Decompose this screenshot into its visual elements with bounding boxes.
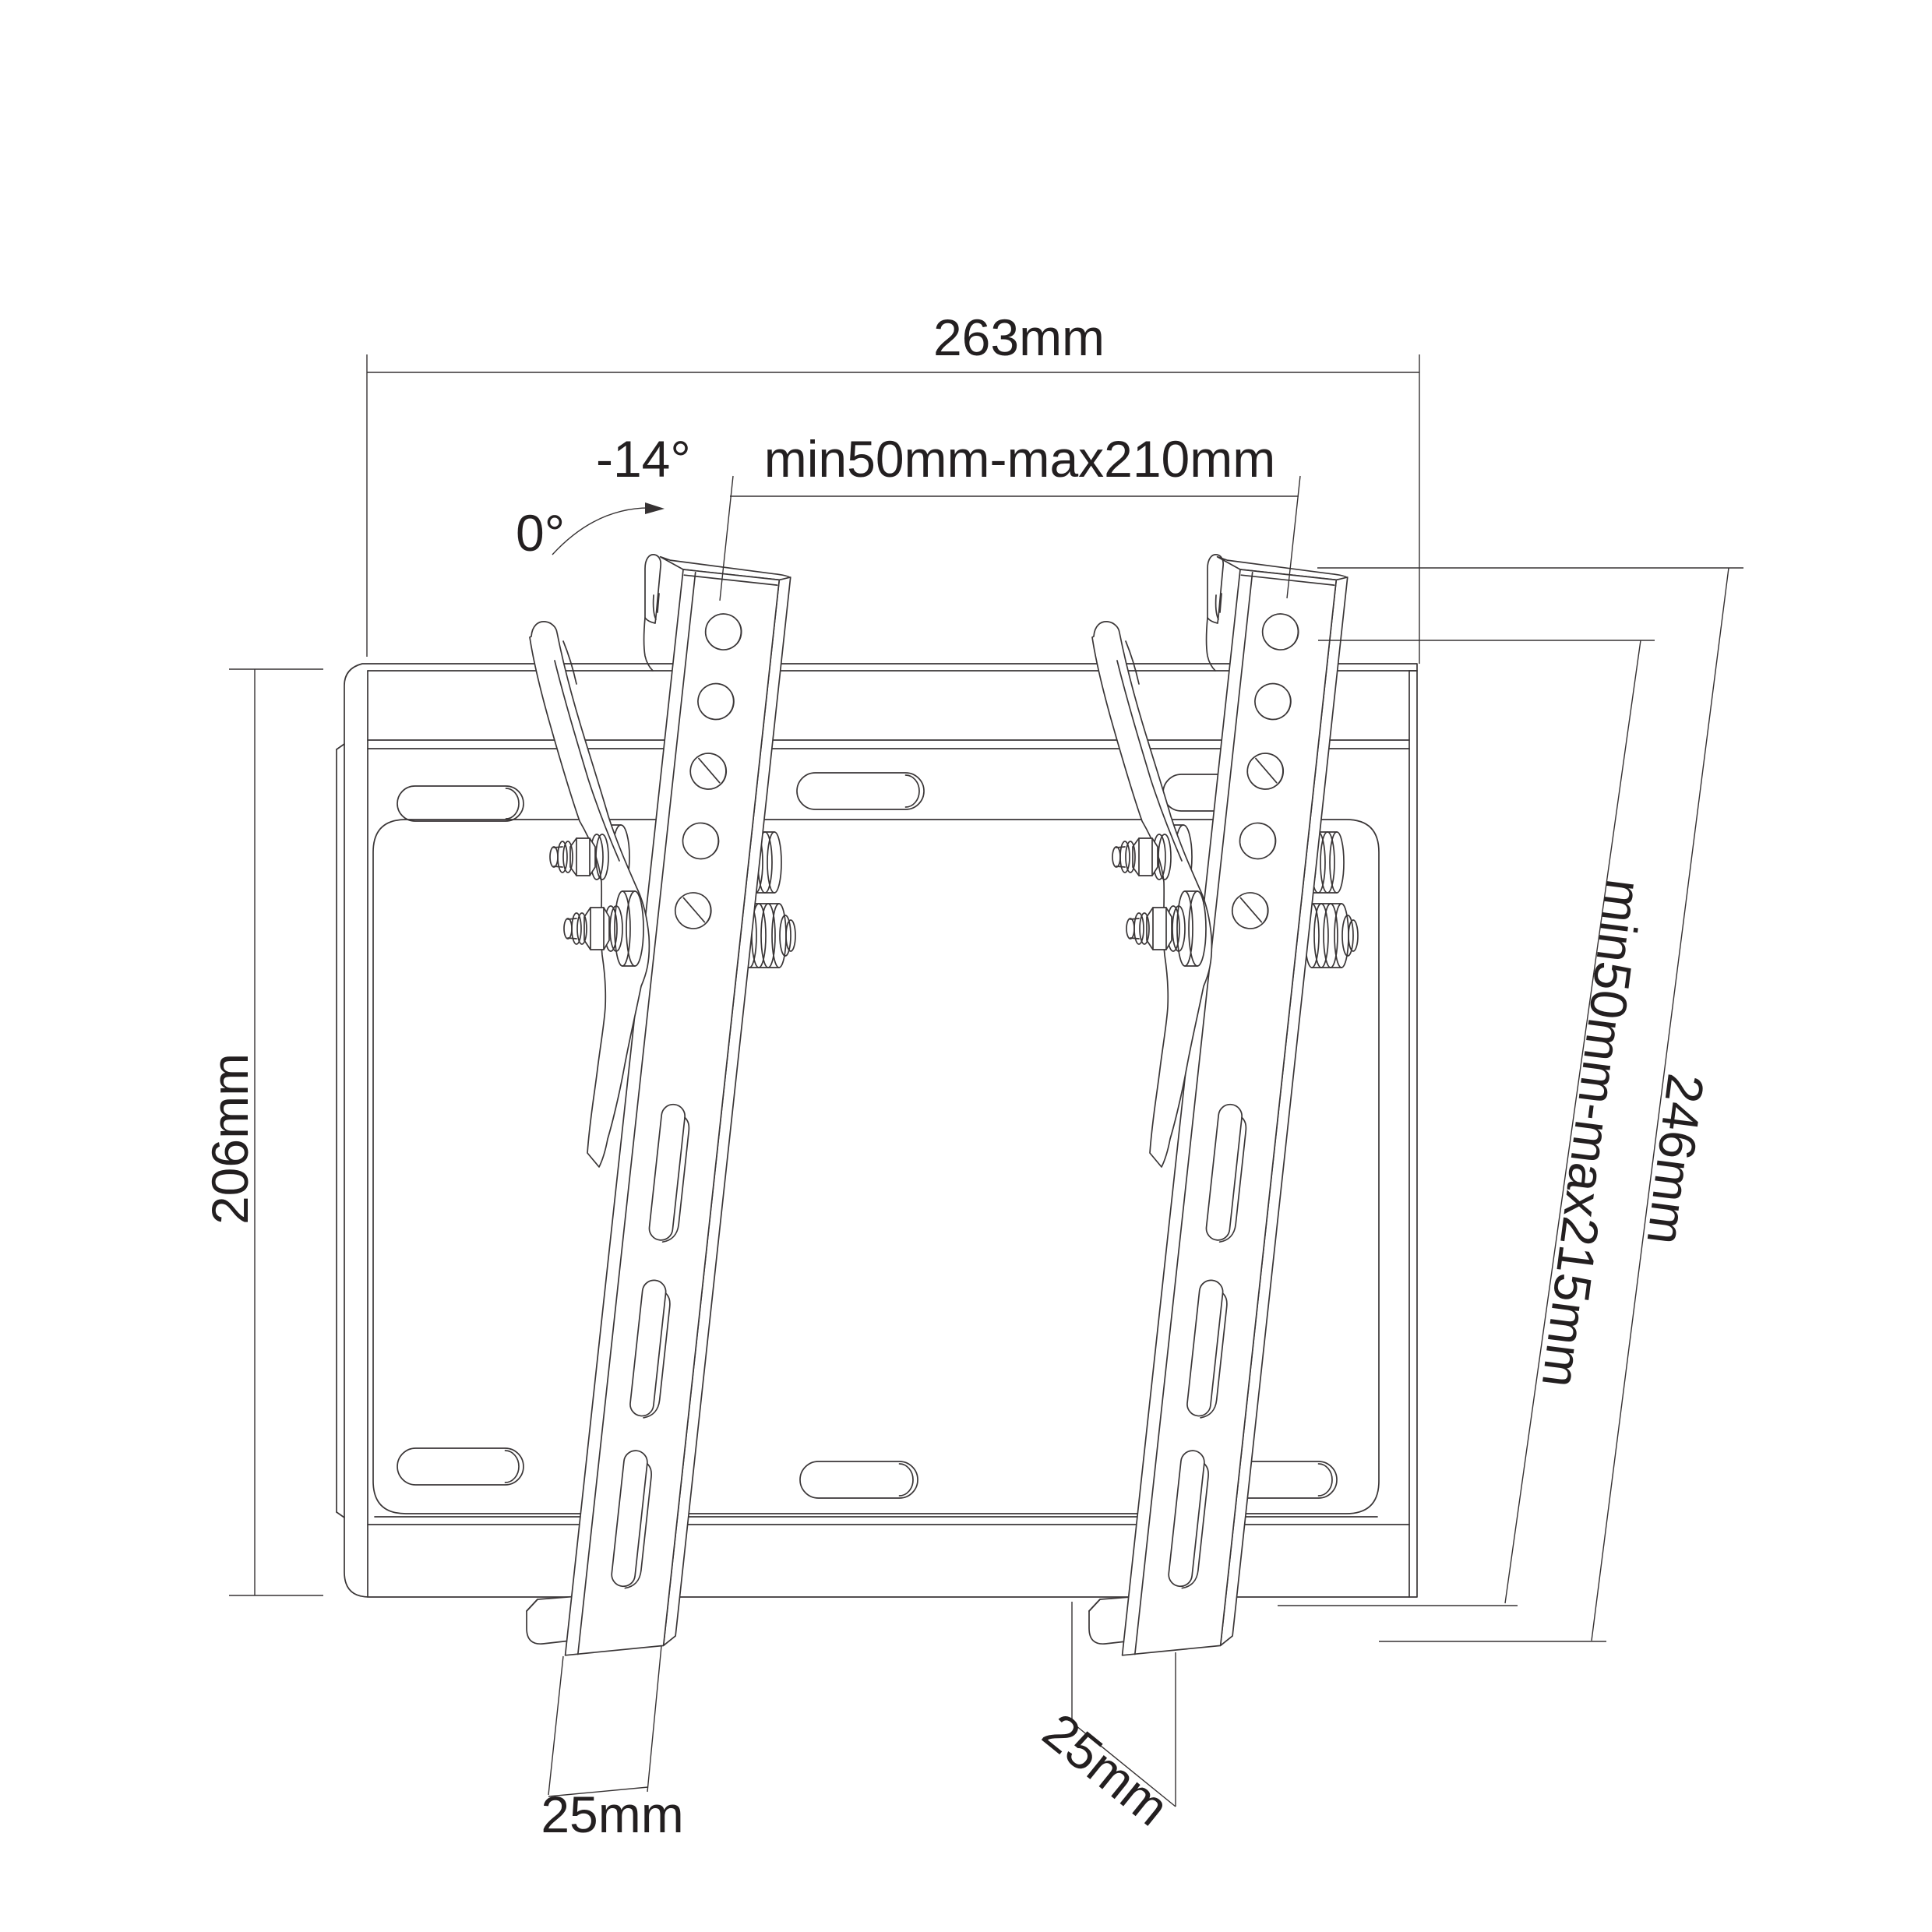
svg-text:25mm: 25mm — [541, 1786, 683, 1843]
svg-text:-14°: -14° — [596, 430, 691, 488]
svg-text:min50mm-max210mm: min50mm-max210mm — [764, 430, 1275, 488]
svg-text:263mm: 263mm — [933, 308, 1105, 366]
svg-text:0°: 0° — [516, 504, 565, 562]
svg-text:206mm: 206mm — [201, 1053, 259, 1225]
